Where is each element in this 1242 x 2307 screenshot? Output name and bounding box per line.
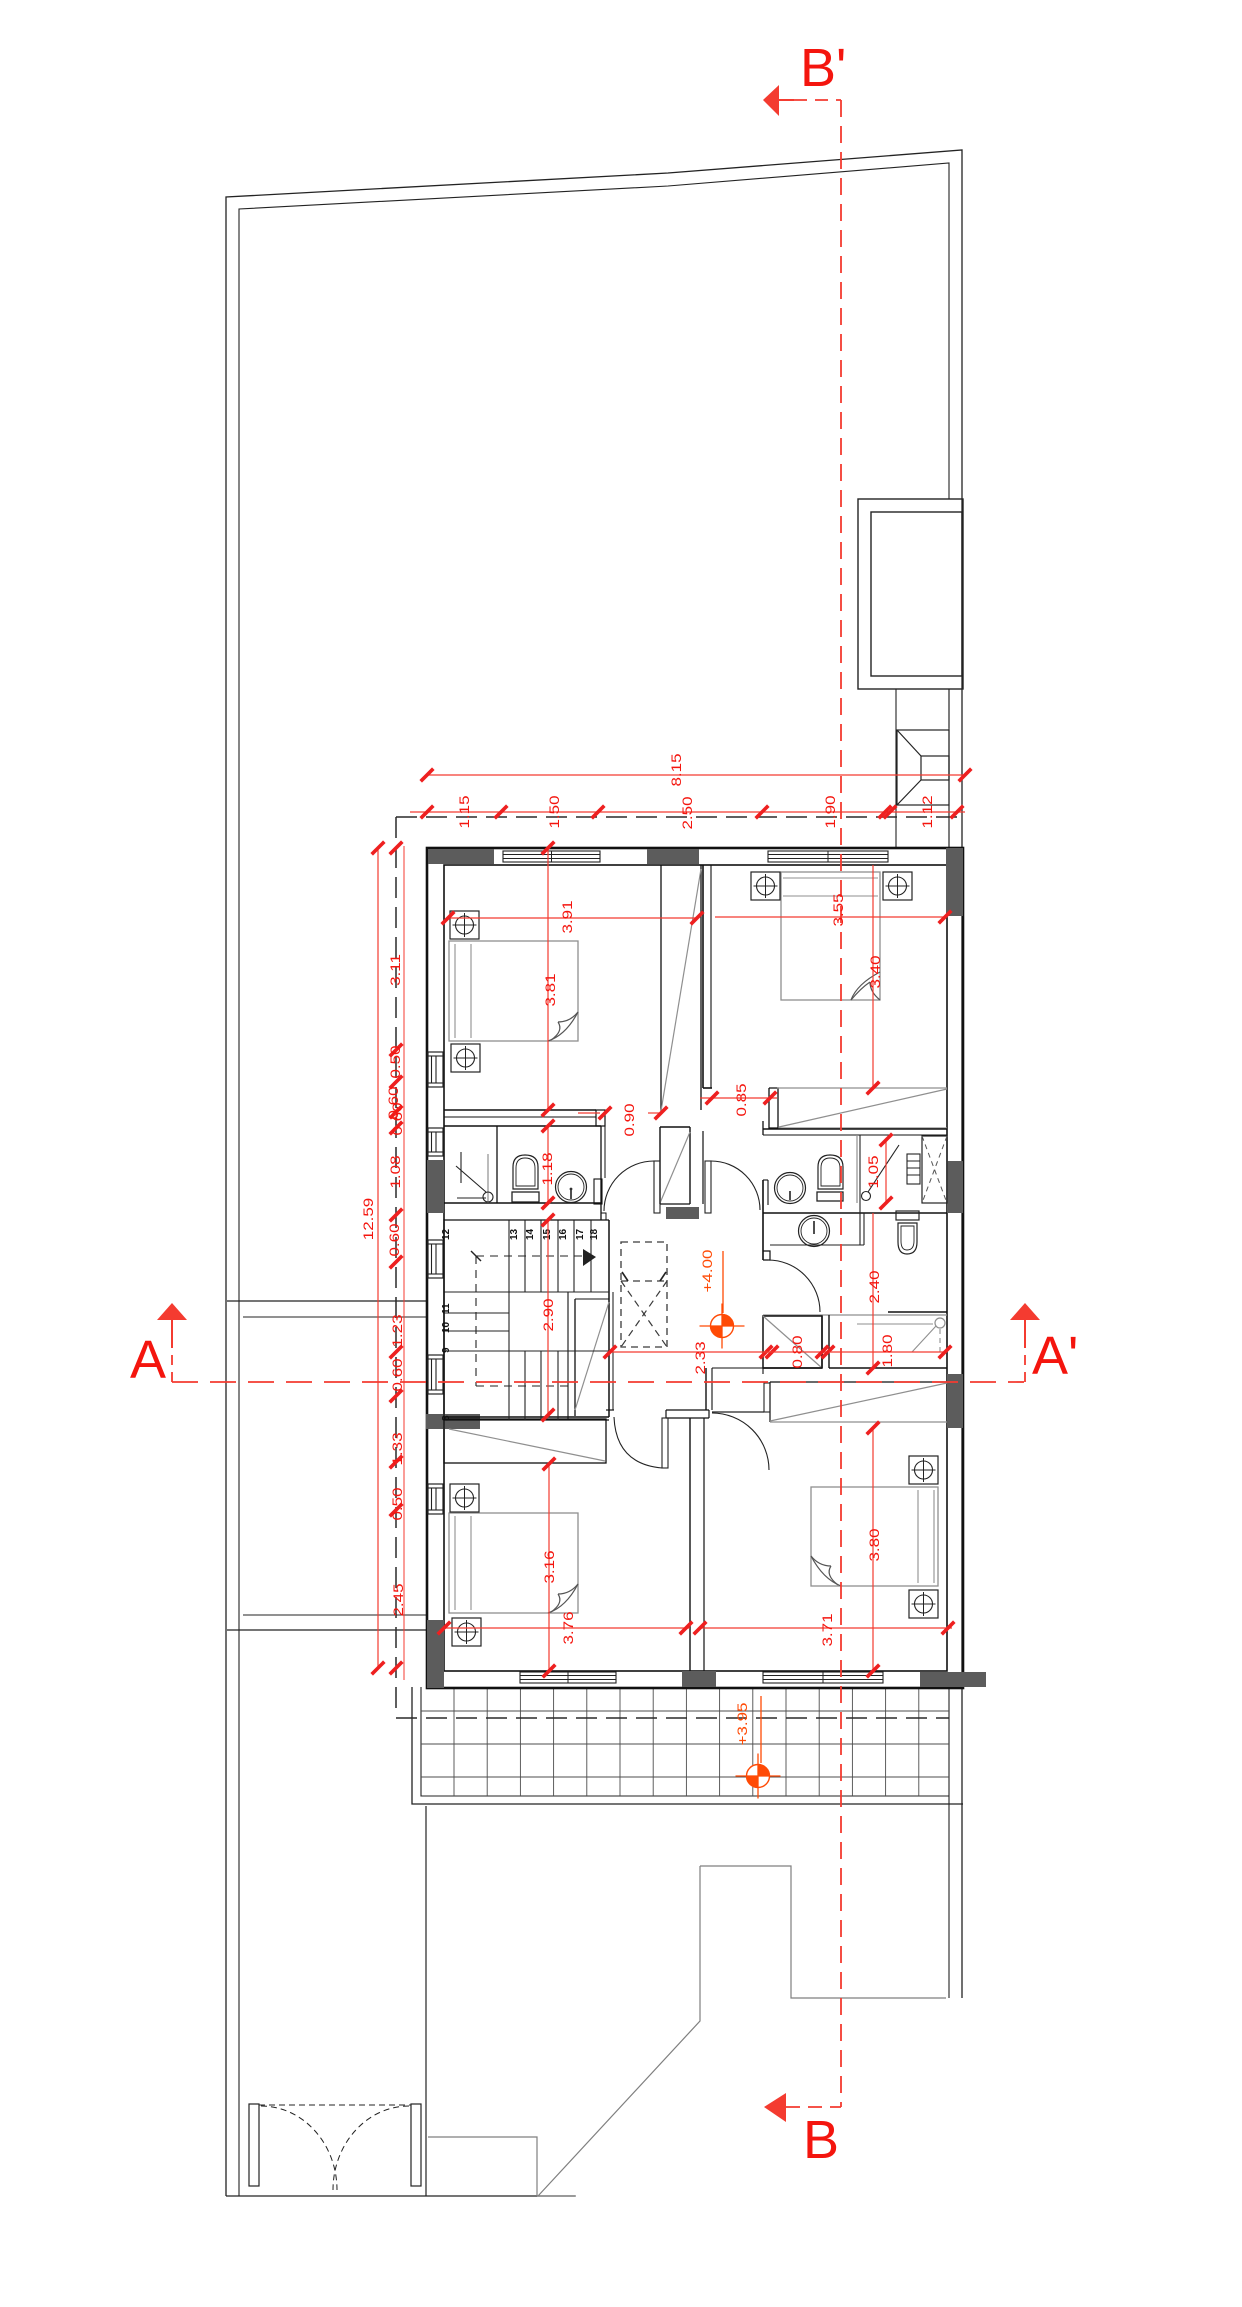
svg-text:1.12: 1.12 [920,795,935,828]
svg-text:A': A' [1032,1326,1078,1386]
svg-text:18: 18 [589,1228,600,1240]
svg-text:3.80: 3.80 [867,1528,882,1561]
svg-text:0.50: 0.50 [388,1045,403,1078]
svg-text:+3.95: +3.95 [735,1703,750,1746]
svg-text:2.33: 2.33 [693,1341,708,1374]
svg-text:1.80: 1.80 [880,1334,895,1367]
svg-text:0.60: 0.60 [390,1102,405,1135]
svg-text:2.40: 2.40 [867,1270,882,1303]
svg-text:10: 10 [441,1321,452,1333]
svg-text:2.45: 2.45 [391,1583,406,1616]
svg-text:A: A [130,1330,166,1390]
svg-text:2.90: 2.90 [541,1298,556,1331]
svg-text:3.11: 3.11 [388,954,403,986]
svg-text:1.18: 1.18 [540,1152,555,1185]
svg-text:12: 12 [441,1228,452,1240]
svg-text:12.59: 12.59 [361,1198,376,1241]
svg-text:0.60: 0.60 [390,1358,405,1391]
svg-text:0.60: 0.60 [387,1223,402,1256]
svg-text:B: B [803,2110,839,2170]
svg-text:3.76: 3.76 [561,1611,576,1644]
svg-text:1.15: 1.15 [457,795,472,828]
svg-text:16: 16 [558,1228,569,1240]
svg-text:11: 11 [441,1303,452,1314]
svg-text:3.91: 3.91 [560,900,575,933]
svg-text:0.50: 0.50 [390,1487,405,1520]
svg-text:8.15: 8.15 [669,753,684,786]
svg-text:9: 9 [441,1347,452,1353]
svg-text:1.05: 1.05 [866,1155,881,1188]
svg-text:3.81: 3.81 [543,973,558,1006]
svg-text:2.50: 2.50 [680,796,695,829]
svg-text:1.23: 1.23 [390,1314,405,1347]
svg-text:1.33: 1.33 [390,1432,405,1465]
svg-text:+4.00: +4.00 [700,1249,715,1292]
svg-text:1.08: 1.08 [388,1155,403,1188]
svg-text:3.55: 3.55 [831,893,846,926]
svg-text:14: 14 [525,1228,536,1240]
svg-text:3.40: 3.40 [868,955,883,988]
svg-text:13: 13 [509,1228,520,1240]
svg-text:3.16: 3.16 [542,1550,557,1583]
svg-text:1.90: 1.90 [823,795,838,828]
svg-text:1.50: 1.50 [547,795,562,828]
svg-text:17: 17 [575,1228,586,1240]
svg-text:0.85: 0.85 [734,1083,749,1116]
svg-text:B': B' [800,38,846,98]
svg-text:0.90: 0.90 [622,1103,637,1136]
svg-text:8: 8 [441,1415,452,1421]
svg-text:3.71: 3.71 [820,1613,835,1646]
svg-text:0.80: 0.80 [790,1335,805,1368]
